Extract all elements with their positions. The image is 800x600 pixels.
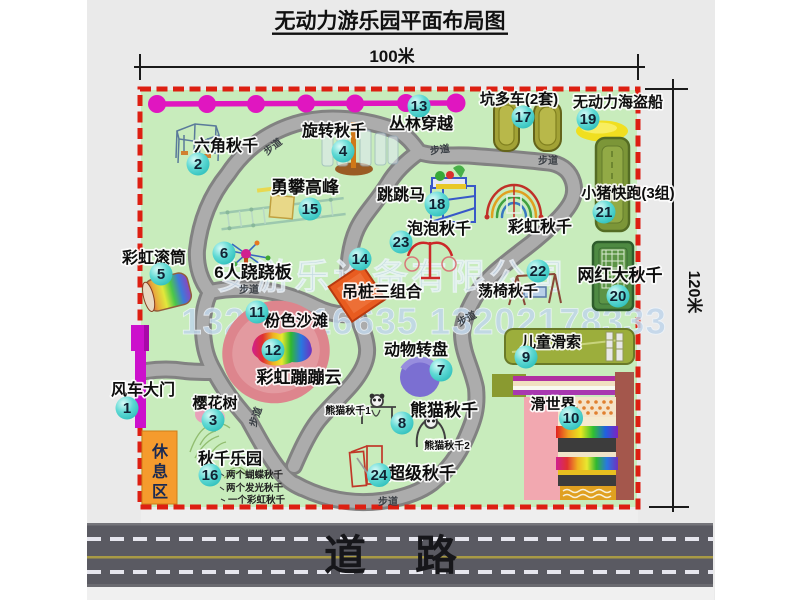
svg-text:步道: 步道 (378, 495, 398, 508)
svg-text:15: 15 (302, 201, 319, 218)
svg-text:动物转盘: 动物转盘 (384, 340, 448, 359)
svg-text:风车大门: 风车大门 (111, 380, 175, 399)
svg-text:23: 23 (393, 234, 410, 251)
svg-text:20: 20 (610, 288, 627, 305)
svg-text:步道: 步道 (239, 283, 259, 296)
svg-text:步道: 步道 (538, 154, 558, 167)
svg-text:24: 24 (371, 467, 388, 484)
svg-text:120米: 120米 (685, 271, 704, 315)
svg-text:彩虹秋千: 彩虹秋千 (507, 217, 572, 236)
svg-text:6: 6 (220, 245, 228, 262)
svg-text:超级秋千: 超级秋千 (388, 463, 456, 483)
svg-text:4: 4 (339, 143, 348, 160)
svg-text:两个蝴蝶秋千: 两个蝴蝶秋千 (226, 469, 284, 481)
svg-text:路: 路 (415, 532, 458, 579)
svg-text:彩虹蹦蹦云: 彩虹蹦蹦云 (256, 367, 342, 387)
svg-text:2: 2 (194, 156, 202, 173)
svg-text:10: 10 (563, 410, 580, 427)
svg-text:1: 1 (123, 400, 131, 417)
svg-text:17: 17 (515, 109, 532, 126)
svg-text:吊桩三组合: 吊桩三组合 (342, 282, 423, 301)
svg-text:小猪快跑(3组): 小猪快跑(3组) (581, 184, 674, 202)
svg-text:18: 18 (429, 196, 446, 213)
svg-text:荡椅秋千: 荡椅秋千 (478, 282, 538, 300)
svg-text:息: 息 (152, 462, 168, 481)
svg-text:16: 16 (202, 467, 219, 484)
svg-text:休: 休 (151, 442, 169, 461)
svg-text:熊猫秋千: 熊猫秋千 (410, 400, 478, 420)
svg-text:9: 9 (522, 349, 530, 366)
svg-text:一个彩虹秋千: 一个彩虹秋千 (228, 494, 286, 506)
svg-text:网红大秋千: 网红大秋千 (578, 265, 663, 285)
svg-text:11: 11 (249, 304, 265, 321)
svg-text:无动力游乐园平面布局图: 无动力游乐园平面布局图 (275, 9, 506, 33)
svg-text:道: 道 (324, 532, 366, 579)
svg-text:粉色沙滩: 粉色沙滩 (264, 311, 328, 330)
svg-text:19: 19 (580, 111, 597, 128)
svg-text:六角秋千: 六角秋千 (194, 136, 258, 155)
svg-text:3: 3 (209, 412, 217, 429)
svg-text:6人跷跷板: 6人跷跷板 (214, 262, 292, 282)
svg-text:13: 13 (411, 98, 428, 115)
svg-text:8: 8 (398, 415, 406, 432)
svg-text:区: 区 (152, 483, 168, 501)
svg-text:100米: 100米 (369, 46, 415, 66)
svg-text:22: 22 (530, 263, 547, 280)
svg-text:两个发光秋千: 两个发光秋千 (226, 482, 284, 494)
svg-text:12: 12 (265, 342, 282, 359)
svg-text:熊猫秋千1: 熊猫秋千1 (325, 404, 371, 417)
svg-text:7: 7 (437, 362, 445, 379)
svg-text:21: 21 (596, 204, 613, 221)
svg-text:跳跳马: 跳跳马 (377, 185, 425, 204)
svg-text:旋转秋千: 旋转秋千 (301, 121, 366, 140)
svg-text:彩虹滚筒: 彩虹滚筒 (121, 248, 186, 267)
svg-text:泡泡秋千: 泡泡秋千 (407, 219, 471, 238)
svg-text:14: 14 (352, 251, 369, 268)
svg-text:5: 5 (157, 266, 165, 283)
svg-text:勇攀高峰: 勇攀高峰 (271, 177, 340, 197)
svg-text:熊猫秋千2: 熊猫秋千2 (424, 439, 470, 452)
svg-text:坑多车(2套): 坑多车(2套) (480, 90, 558, 108)
